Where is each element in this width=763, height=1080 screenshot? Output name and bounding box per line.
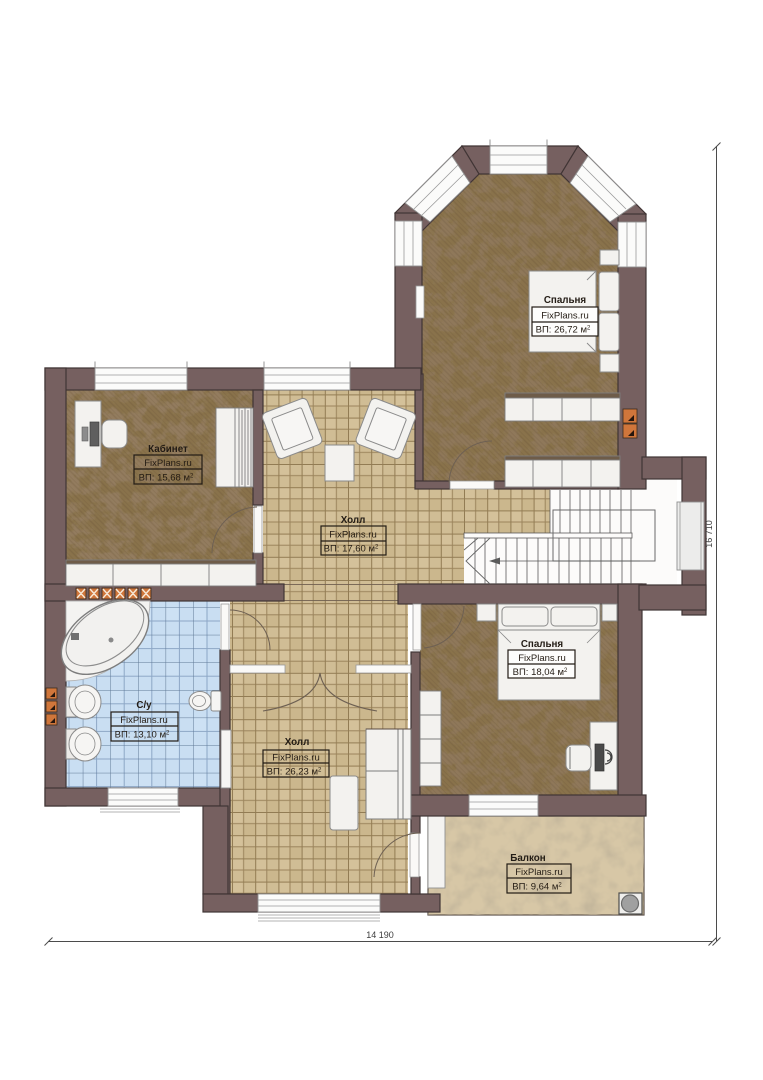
svg-text:FixPlans.ru: FixPlans.ru bbox=[515, 867, 563, 878]
svg-text:ВП: 17,60 м2: ВП: 17,60 м2 bbox=[324, 544, 379, 555]
svg-text:FixPlans.ru: FixPlans.ru bbox=[144, 458, 192, 469]
svg-text:Кабинет: Кабинет bbox=[148, 444, 188, 455]
svg-text:ВП: 15,68 м2: ВП: 15,68 м2 bbox=[139, 473, 194, 484]
svg-text:ВП: 9,64 м2: ВП: 9,64 м2 bbox=[512, 882, 562, 893]
svg-text:ВП: 18,04 м2: ВП: 18,04 м2 bbox=[513, 667, 568, 678]
svg-text:Спальня: Спальня bbox=[521, 639, 564, 650]
svg-text:16 710: 16 710 bbox=[704, 520, 714, 548]
svg-text:С/у: С/у bbox=[136, 700, 152, 711]
svg-text:ВП: 13,10 м2: ВП: 13,10 м2 bbox=[115, 730, 170, 741]
svg-text:ВП: 26,72 м2: ВП: 26,72 м2 bbox=[536, 325, 591, 336]
svg-text:Балкон: Балкон bbox=[510, 853, 545, 864]
svg-text:FixPlans.ru: FixPlans.ru bbox=[272, 753, 320, 764]
svg-text:Холл: Холл bbox=[341, 515, 366, 526]
svg-text:Спальня: Спальня bbox=[544, 295, 587, 306]
svg-text:FixPlans.ru: FixPlans.ru bbox=[541, 311, 589, 322]
svg-text:14 190: 14 190 bbox=[366, 930, 394, 940]
svg-text:FixPlans.ru: FixPlans.ru bbox=[120, 715, 168, 726]
svg-text:Холл: Холл bbox=[285, 737, 310, 748]
svg-text:FixPlans.ru: FixPlans.ru bbox=[518, 653, 566, 664]
svg-text:ВП: 26,23 м2: ВП: 26,23 м2 bbox=[267, 767, 322, 778]
svg-text:FixPlans.ru: FixPlans.ru bbox=[329, 530, 377, 541]
